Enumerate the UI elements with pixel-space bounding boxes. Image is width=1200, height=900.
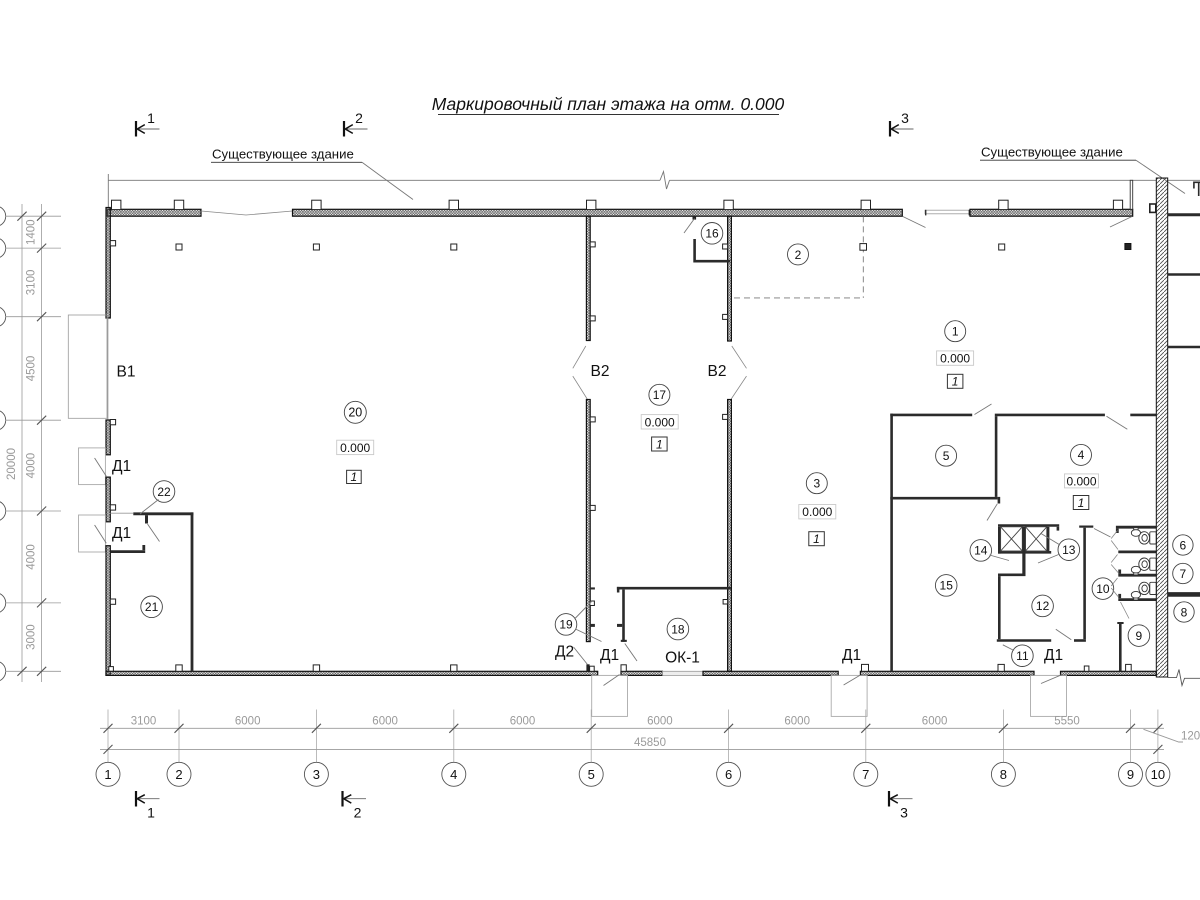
- svg-text:3000: 3000: [26, 624, 38, 650]
- svg-text:0.000: 0.000: [645, 415, 675, 429]
- svg-text:6000: 6000: [647, 715, 673, 727]
- svg-text:3: 3: [900, 805, 908, 821]
- svg-text:16: 16: [705, 227, 719, 241]
- svg-text:8: 8: [1000, 767, 1007, 782]
- svg-text:17: 17: [653, 388, 667, 402]
- svg-text:6: 6: [1180, 538, 1187, 552]
- svg-text:1200: 1200: [1181, 731, 1200, 743]
- svg-text:20000: 20000: [6, 448, 18, 480]
- svg-text:45850: 45850: [634, 737, 666, 749]
- svg-text:1: 1: [147, 805, 155, 821]
- svg-text:2: 2: [795, 248, 802, 262]
- svg-text:ОК-1: ОК-1: [665, 650, 700, 667]
- svg-text:3: 3: [901, 110, 909, 126]
- svg-text:18: 18: [671, 622, 685, 636]
- svg-text:14: 14: [974, 544, 988, 558]
- svg-text:1: 1: [952, 324, 959, 338]
- svg-text:6000: 6000: [922, 715, 948, 727]
- svg-text:4000: 4000: [26, 544, 38, 570]
- svg-text:1: 1: [813, 532, 820, 546]
- svg-text:6000: 6000: [235, 715, 261, 727]
- svg-text:Д1: Д1: [1044, 647, 1063, 664]
- svg-text:10: 10: [1151, 767, 1165, 782]
- svg-text:Д1: Д1: [112, 525, 131, 542]
- svg-text:0.000: 0.000: [340, 441, 370, 455]
- svg-text:6000: 6000: [372, 715, 398, 727]
- svg-text:1: 1: [351, 470, 358, 484]
- svg-text:3100: 3100: [131, 715, 157, 727]
- svg-text:15: 15: [940, 579, 954, 593]
- svg-text:Д1: Д1: [842, 647, 861, 664]
- svg-text:4000: 4000: [26, 453, 38, 479]
- svg-text:12: 12: [1036, 599, 1050, 613]
- svg-text:7: 7: [862, 767, 869, 782]
- svg-text:1400: 1400: [26, 219, 38, 245]
- svg-text:11: 11: [1016, 649, 1029, 663]
- svg-text:6000: 6000: [784, 715, 810, 727]
- svg-text:8: 8: [1181, 605, 1188, 619]
- svg-text:В2: В2: [708, 363, 727, 380]
- svg-text:2: 2: [175, 767, 182, 782]
- svg-text:1: 1: [656, 437, 663, 451]
- svg-text:6: 6: [725, 767, 732, 782]
- svg-text:5: 5: [943, 449, 950, 463]
- svg-text:0.000: 0.000: [940, 352, 970, 366]
- svg-text:19: 19: [559, 618, 573, 632]
- svg-text:Д1: Д1: [112, 458, 131, 475]
- svg-text:3: 3: [813, 476, 820, 490]
- svg-text:7: 7: [1180, 567, 1187, 581]
- svg-text:4: 4: [1078, 448, 1085, 462]
- svg-text:3: 3: [313, 767, 320, 782]
- svg-text:4: 4: [450, 767, 457, 782]
- svg-text:1: 1: [1078, 496, 1085, 510]
- svg-text:9: 9: [1136, 629, 1143, 643]
- svg-text:0.000: 0.000: [802, 505, 832, 519]
- svg-text:В1: В1: [117, 364, 136, 381]
- svg-text:Д1: Д1: [600, 647, 619, 664]
- svg-text:Существующее здание: Существующее здание: [981, 145, 1123, 160]
- svg-text:4500: 4500: [26, 356, 38, 382]
- svg-text:5550: 5550: [1054, 715, 1080, 727]
- svg-text:Д2: Д2: [555, 643, 574, 660]
- svg-text:1: 1: [104, 767, 111, 782]
- svg-text:2: 2: [354, 805, 362, 821]
- svg-text:1: 1: [952, 375, 959, 389]
- svg-text:20: 20: [348, 406, 362, 420]
- svg-text:22: 22: [157, 485, 171, 499]
- svg-text:Существующее здание: Существующее здание: [212, 147, 354, 162]
- svg-text:10: 10: [1096, 582, 1110, 596]
- svg-text:0.000: 0.000: [1066, 474, 1096, 488]
- svg-text:Маркировочный план этажа на от: Маркировочный план этажа на отм. 0.000: [432, 94, 785, 114]
- svg-text:5: 5: [588, 767, 595, 782]
- svg-text:13: 13: [1062, 543, 1076, 557]
- svg-text:3100: 3100: [26, 270, 38, 296]
- svg-text:6000: 6000: [510, 715, 536, 727]
- svg-text:9: 9: [1127, 767, 1134, 782]
- svg-text:21: 21: [145, 600, 159, 614]
- svg-text:В2: В2: [591, 363, 610, 380]
- svg-text:2: 2: [355, 110, 363, 126]
- svg-text:1: 1: [147, 110, 155, 126]
